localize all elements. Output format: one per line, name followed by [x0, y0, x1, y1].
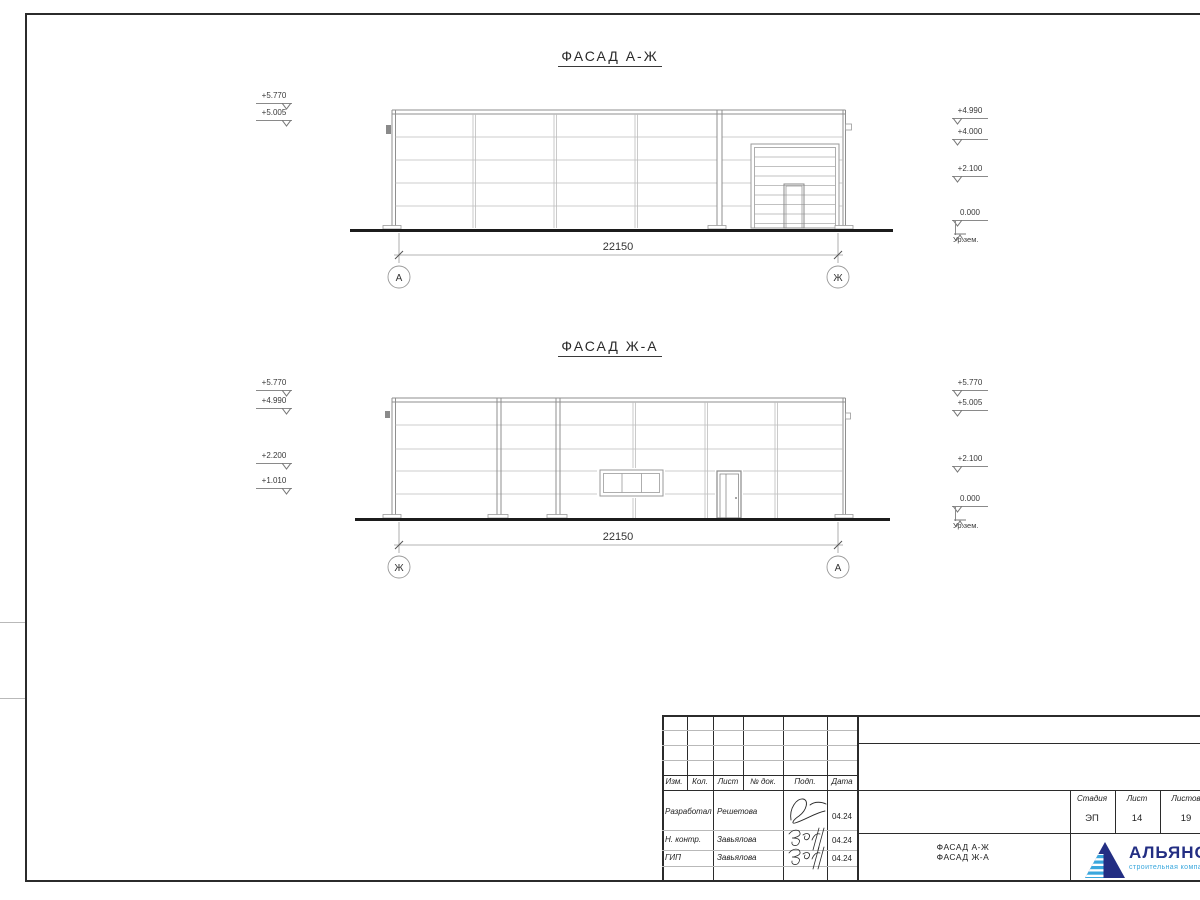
titleblock-line — [857, 833, 1200, 834]
titleblock-line — [1160, 790, 1161, 833]
elevation-mark: +4.990 — [952, 105, 988, 119]
facade-2-title: ФАСАД Ж-А — [500, 338, 720, 354]
titleblock-line — [662, 715, 664, 881]
siding-lines — [396, 402, 844, 518]
elevation-mark: 0.000 — [952, 207, 988, 221]
dimension-text: 22150 — [603, 241, 634, 253]
sign-name: Завьялова — [717, 853, 756, 862]
sign-role: Н. контр. — [665, 835, 701, 844]
signature — [783, 790, 827, 830]
elevation-arrow-icon — [953, 390, 962, 397]
elevation-mark: +5.005 — [256, 107, 292, 121]
header-list: Лист — [718, 777, 739, 786]
elevation-mark: +4.000 — [952, 126, 988, 140]
elevation-arrow-icon — [953, 466, 962, 473]
ground-level-mark: Ур.зем. — [953, 233, 978, 244]
sign-name: Завьялова — [717, 835, 756, 844]
elevation-mark: +1.010 — [256, 475, 292, 489]
elevation-mark: +4.990 — [256, 395, 292, 409]
dimension-text: 22150 — [603, 531, 634, 543]
titleblock-line — [1070, 790, 1071, 881]
margin-mark — [0, 698, 25, 699]
header-podp: Подп. — [794, 777, 815, 786]
grid-letter-left: Ж — [394, 563, 404, 574]
titleblock-line — [662, 790, 1200, 791]
frame-left — [25, 13, 27, 882]
sheets-value: 19 — [1181, 813, 1192, 824]
gate-slats — [755, 157, 836, 224]
titleblock-row-line — [662, 850, 857, 851]
grid-circles — [388, 556, 849, 578]
elevation-arrow-icon — [282, 488, 291, 495]
titleblock-line — [743, 715, 744, 790]
margin-mark — [0, 622, 25, 623]
titleblock-line — [857, 743, 1200, 744]
titleblock-row-line — [662, 730, 857, 731]
grid-letter-left: А — [396, 273, 403, 284]
facade-1-title: ФАСАД А-Ж — [500, 48, 720, 64]
siding-lines — [396, 114, 844, 228]
header-izm: Изм. — [665, 777, 682, 786]
elevation-mark: +2.100 — [952, 163, 988, 177]
elevation-mark: 0.000 — [952, 493, 988, 507]
elevation-arrow-icon — [953, 139, 962, 146]
elevation-arrow-icon — [953, 410, 962, 417]
building-outline — [392, 110, 846, 228]
titleblock-row-line — [662, 745, 857, 746]
titleblock-line — [713, 715, 714, 881]
grid-letter-right: Ж — [833, 273, 843, 284]
gate-wicket-door — [784, 184, 804, 228]
facade-2-drawing: 22150 Ж А — [340, 385, 900, 585]
stage-value: ЭП — [1085, 813, 1099, 824]
titleblock-row-line — [662, 760, 857, 761]
edge-detail — [846, 413, 851, 419]
elevation-mark: +2.100 — [952, 453, 988, 467]
frame-top — [25, 13, 1200, 15]
sign-role: Разработал — [665, 807, 712, 816]
stage-label: Стадия — [1077, 794, 1107, 803]
window-mask — [597, 468, 665, 498]
titleblock-row-line — [662, 830, 857, 831]
sheet-value: 14 — [1132, 813, 1143, 824]
sheet-label: Лист — [1127, 794, 1148, 803]
elevation-mark: +5.770 — [952, 377, 988, 391]
downpipe-bracket — [385, 411, 390, 418]
sign-name: Решетова — [717, 807, 757, 816]
titleblock-line — [687, 715, 688, 790]
elevation-arrow-icon — [282, 463, 291, 470]
elevation-arrow-icon — [953, 176, 962, 183]
edge-detail — [846, 124, 852, 130]
sign-date: 04.24 — [832, 836, 852, 845]
sign-date: 04.24 — [832, 854, 852, 863]
sheets-label: Листов — [1171, 794, 1200, 803]
titleblock-line — [1115, 790, 1116, 833]
titleblock-row-line — [662, 866, 857, 867]
titleblock-line — [857, 715, 859, 881]
column-footings — [383, 515, 853, 519]
drawing-sheet: ФАСАД А-Ж — [0, 0, 1200, 900]
elevation-arrow-icon — [953, 118, 962, 125]
grid-circles — [388, 266, 849, 288]
header-kol: Кол. — [692, 777, 708, 786]
elevation-mark: +2.200 — [256, 450, 292, 464]
company-name: АЛЬЯНС — [1129, 843, 1200, 863]
signature — [783, 845, 827, 871]
header-data: Дата — [831, 777, 852, 786]
elevation-mark: +5.005 — [952, 397, 988, 411]
frame-bottom — [25, 880, 1200, 882]
sign-role: ГИП — [665, 853, 681, 862]
facade-1-drawing: 22150 А Ж — [340, 95, 900, 295]
sign-date: 04.24 — [832, 812, 852, 821]
elevation-mark: +5.770 — [256, 377, 292, 391]
titleblock-line — [827, 715, 828, 881]
company-logo-icon — [1084, 841, 1126, 879]
ground-level-mark: Ур.зем. — [953, 519, 978, 530]
doc-title: ФАСАД А-Ж ФАСАД Ж-А — [883, 842, 1043, 862]
elevation-mark: +5.770 — [256, 90, 292, 104]
ground-level-icon — [953, 519, 967, 529]
header-ndok: № док. — [750, 777, 776, 786]
company-tagline: строительная компания — [1129, 864, 1200, 871]
ground-level-icon — [953, 233, 967, 243]
columns — [497, 398, 560, 518]
grid-letter-right: А — [835, 563, 842, 574]
elevation-arrow-icon — [282, 408, 291, 415]
gate-bay-column — [717, 110, 722, 228]
elevation-arrow-icon — [282, 120, 291, 127]
downpipe-bracket — [386, 125, 391, 134]
